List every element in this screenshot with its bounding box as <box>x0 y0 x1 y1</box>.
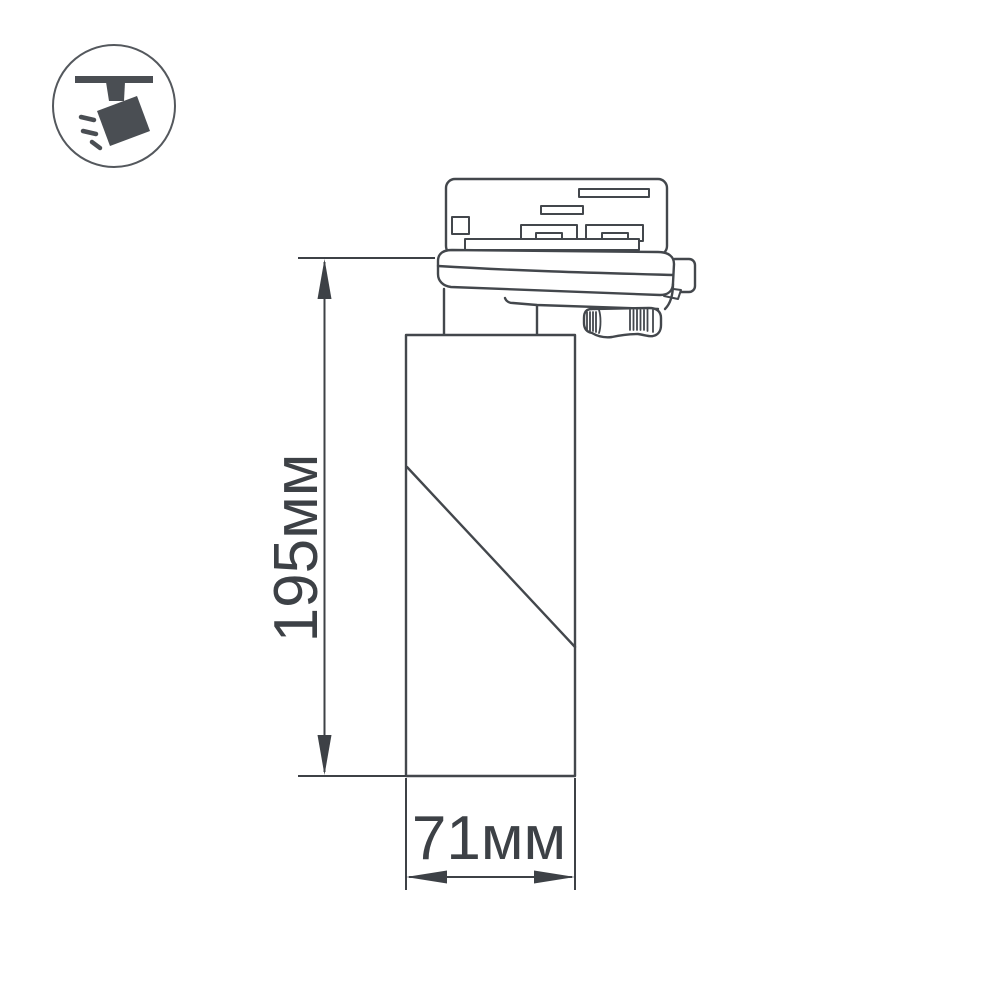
contact-strip-mid <box>541 206 583 214</box>
width-dimension-label: 71мм <box>412 804 566 873</box>
contact-strip-top <box>579 189 649 197</box>
spot-stem <box>106 82 125 101</box>
technical-drawing: 195мм 71мм <box>0 0 1000 1000</box>
arrow-down-icon <box>318 735 332 775</box>
fixture-drawing <box>406 179 695 776</box>
mount-type-badge <box>53 45 175 167</box>
locking-knob <box>584 308 661 337</box>
drawing-canvas: 195мм 71мм <box>0 0 1000 1000</box>
height-dimension-label: 195мм <box>262 454 331 643</box>
contact-square <box>452 217 469 234</box>
arrow-up-icon <box>318 259 332 299</box>
contact-bar-bottom <box>465 239 639 250</box>
track-bar <box>75 76 153 83</box>
width-dimension: 71мм <box>406 778 575 890</box>
